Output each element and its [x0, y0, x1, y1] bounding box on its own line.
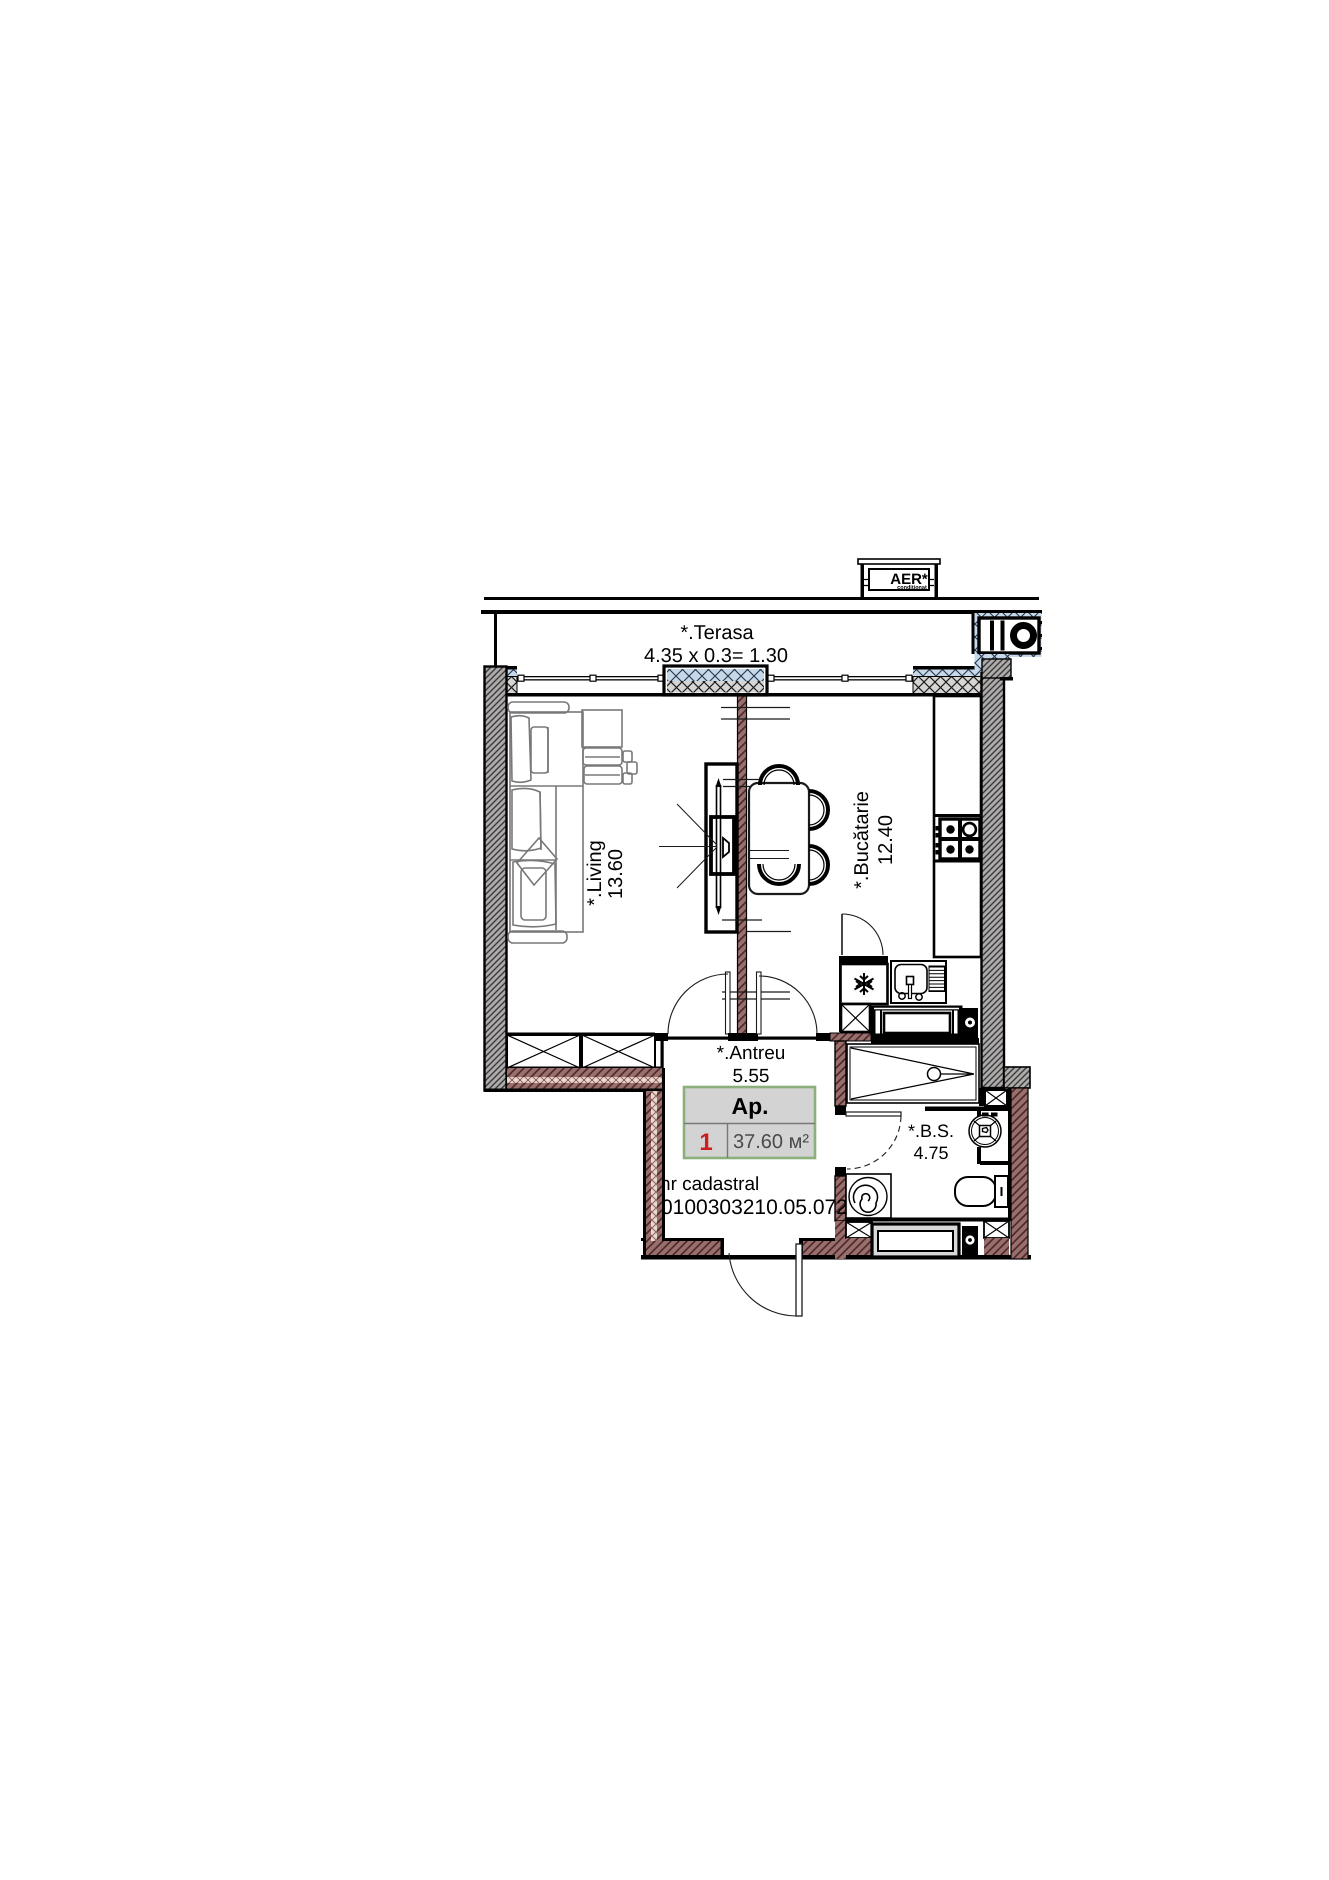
svg-text:0100303210.05.072: 0100303210.05.072 — [661, 1196, 848, 1219]
svg-text:*.Terasa: *.Terasa — [680, 622, 754, 644]
svg-text:*.Living: *.Living — [584, 840, 606, 906]
svg-text:*.Antreu: *.Antreu — [717, 1043, 786, 1064]
svg-text:4.75: 4.75 — [913, 1143, 948, 1163]
svg-text:conditionat: conditionat — [897, 585, 927, 591]
svg-text:4.35 x 0.3= 1.30: 4.35 x 0.3= 1.30 — [644, 645, 788, 667]
svg-text:13.60: 13.60 — [605, 849, 627, 899]
svg-text:5.55: 5.55 — [733, 1066, 770, 1087]
svg-text:*.Bucătarie: *.Bucătarie — [851, 791, 873, 889]
svg-text:12.40: 12.40 — [875, 815, 897, 865]
svg-text:1: 1 — [699, 1129, 712, 1156]
svg-text:nr cadastral: nr cadastral — [660, 1174, 759, 1195]
svg-text:Ap.: Ap. — [731, 1093, 768, 1119]
svg-text:*.B.S.: *.B.S. — [908, 1121, 954, 1141]
svg-text:37.60 м²: 37.60 м² — [733, 1131, 809, 1153]
